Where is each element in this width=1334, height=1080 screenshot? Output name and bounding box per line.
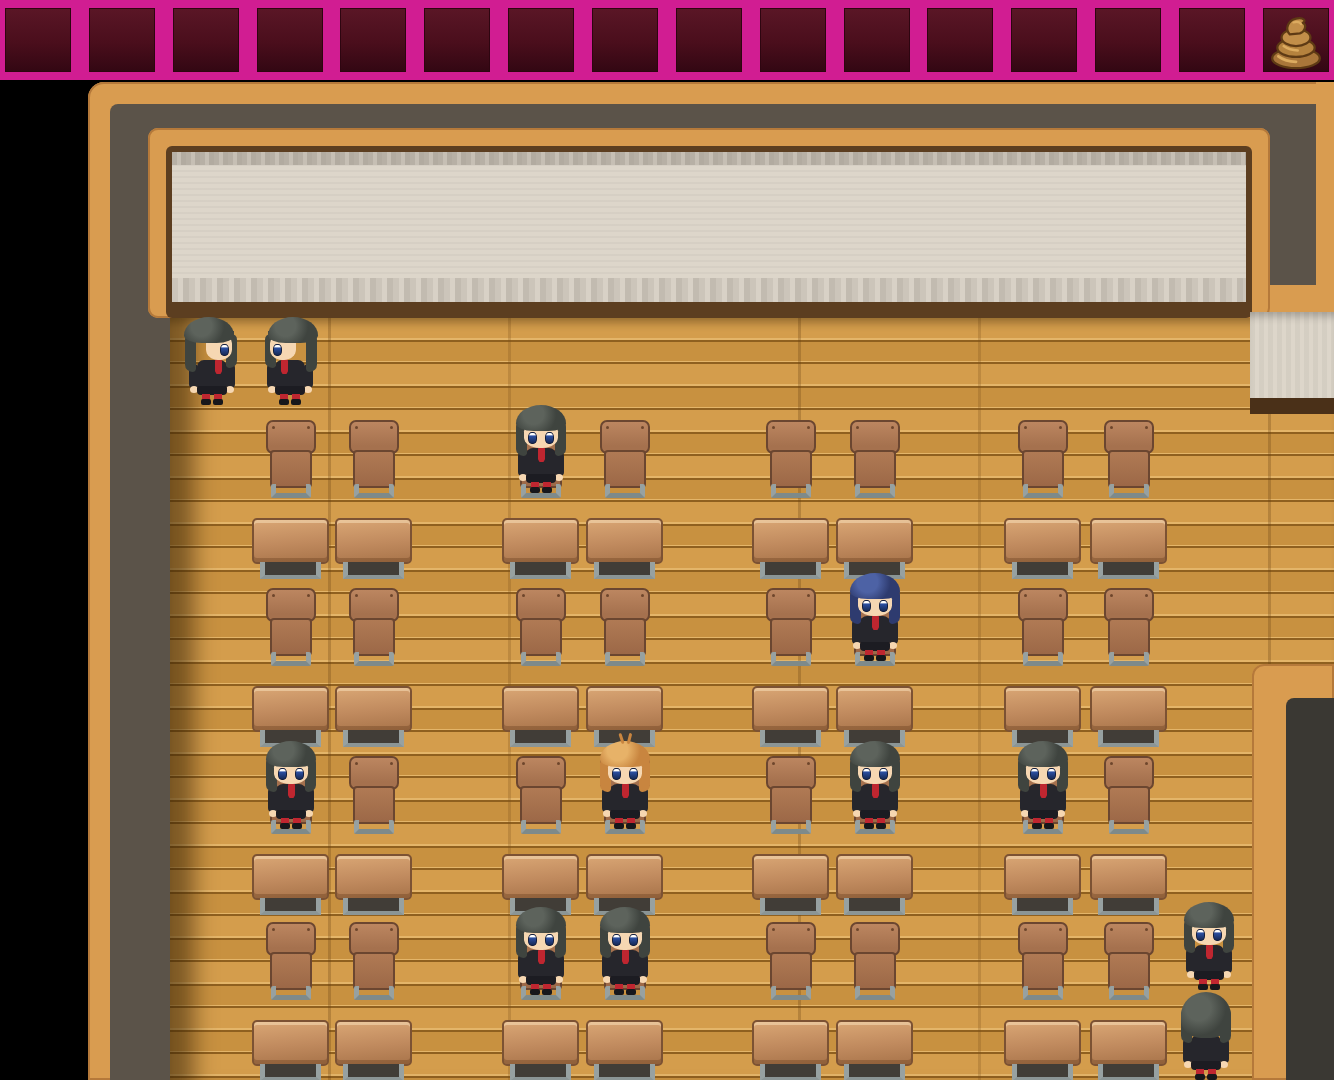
desk xyxy=(1004,854,1081,916)
student-shoe-r xyxy=(876,655,886,661)
desk xyxy=(502,686,579,748)
desk-top xyxy=(752,1020,829,1066)
desk-top xyxy=(586,1020,663,1066)
desk-top xyxy=(836,1020,913,1066)
chair xyxy=(1018,588,1068,666)
student-11[interactable] xyxy=(1183,903,1235,991)
student-shoe-r xyxy=(876,823,886,829)
student-eye-r xyxy=(629,768,638,780)
chair-backrest xyxy=(766,420,816,454)
chair-legs xyxy=(1109,484,1149,498)
item-slot[interactable] xyxy=(1011,8,1077,72)
desk-legs xyxy=(1098,562,1159,579)
desk-top xyxy=(1090,1020,1167,1066)
desk xyxy=(836,686,913,748)
desk-top xyxy=(502,1020,579,1066)
chair-seat xyxy=(520,618,562,656)
chair-backrest xyxy=(266,588,316,622)
student-tie xyxy=(1041,786,1046,798)
chair-seat xyxy=(270,450,312,488)
desk xyxy=(252,518,329,580)
chair-seat xyxy=(353,450,395,488)
student-shoe-l xyxy=(1195,1074,1205,1080)
student-eye-r xyxy=(545,934,554,946)
chair-backrest xyxy=(1104,588,1154,622)
student-1[interactable] xyxy=(186,318,238,406)
student-hair-m xyxy=(600,741,650,767)
desk xyxy=(1090,686,1167,748)
desk xyxy=(1004,1020,1081,1080)
desk xyxy=(252,1020,329,1080)
student-hair-m xyxy=(516,907,566,933)
student-shoe-l xyxy=(201,399,211,405)
chair xyxy=(516,588,566,666)
desk-top xyxy=(586,854,663,900)
student-hair-m xyxy=(1018,741,1068,767)
desk xyxy=(502,1020,579,1080)
item-bar xyxy=(0,0,1334,80)
chair xyxy=(266,588,316,666)
student-eye-l xyxy=(528,432,537,444)
chair-backrest xyxy=(1018,420,1068,454)
student-shoe-r xyxy=(1044,823,1054,829)
desk-top xyxy=(335,518,412,564)
chair-seat xyxy=(353,618,395,656)
chair-backrest xyxy=(850,420,900,454)
student-eye-r xyxy=(295,768,304,780)
student-hand-r xyxy=(1220,1061,1228,1068)
chair-seat xyxy=(270,618,312,656)
student-tie xyxy=(289,786,294,798)
chair-legs xyxy=(855,484,895,498)
student-shoe-r xyxy=(292,823,302,829)
desk xyxy=(252,686,329,748)
item-slot[interactable] xyxy=(927,8,993,72)
desk-legs xyxy=(760,562,821,579)
desk-top xyxy=(1004,1020,1081,1066)
student-shoe-l xyxy=(614,823,624,829)
student-eye-r xyxy=(629,934,638,946)
item-slot[interactable] xyxy=(340,8,406,72)
chair-seat xyxy=(770,450,812,488)
desk-legs xyxy=(260,898,321,915)
student-10[interactable] xyxy=(599,908,651,996)
student-eye-l xyxy=(612,768,621,780)
chair-seat xyxy=(1108,450,1150,488)
desk xyxy=(752,686,829,748)
chair-backrest xyxy=(266,922,316,956)
desk xyxy=(1004,686,1081,748)
chair-seat xyxy=(770,786,812,824)
desk-top xyxy=(586,686,663,732)
student-eye-r xyxy=(879,600,888,612)
student-hair-m xyxy=(1181,992,1231,1038)
student-hand-r xyxy=(305,810,313,817)
student-shoe-l xyxy=(280,823,290,829)
item-slot[interactable] xyxy=(760,8,826,72)
student-eye-r xyxy=(1213,929,1222,941)
desk-top xyxy=(1090,854,1167,900)
student-hair-m xyxy=(268,317,318,343)
student-5[interactable] xyxy=(265,742,317,830)
desk-legs xyxy=(1098,898,1159,915)
desk-top xyxy=(252,518,329,564)
chair xyxy=(349,588,399,666)
chair-backrest xyxy=(349,420,399,454)
chair-backrest xyxy=(1104,756,1154,790)
chair xyxy=(349,756,399,834)
desk-top xyxy=(502,686,579,732)
student-torso xyxy=(197,360,227,388)
student-eye-r xyxy=(1047,768,1056,780)
chair-seat xyxy=(520,786,562,824)
chair xyxy=(266,922,316,1000)
desk-top xyxy=(335,686,412,732)
desk-legs xyxy=(594,562,655,579)
chair-legs xyxy=(354,986,394,1000)
student-eye-l xyxy=(273,344,282,356)
student-tie xyxy=(873,786,878,798)
desk-top xyxy=(1004,518,1081,564)
student-shoe-l xyxy=(530,487,540,493)
chair-backrest xyxy=(349,756,399,790)
desk xyxy=(1004,518,1081,580)
chair xyxy=(600,420,650,498)
chair-seat xyxy=(1022,952,1064,990)
chair-backrest xyxy=(516,756,566,790)
student-shoe-r xyxy=(626,823,636,829)
chair-legs xyxy=(855,986,895,1000)
student-eye-r xyxy=(220,344,229,356)
chair-legs xyxy=(1023,652,1063,666)
item-slot[interactable] xyxy=(89,8,155,72)
student-tie xyxy=(623,786,628,798)
chair-seat xyxy=(1108,952,1150,990)
student-eye-l xyxy=(862,600,871,612)
chair xyxy=(850,420,900,498)
chair-legs xyxy=(354,484,394,498)
chair-backrest xyxy=(1018,588,1068,622)
desk-top xyxy=(752,686,829,732)
student-hand-r xyxy=(304,386,312,393)
student-tie xyxy=(873,618,878,630)
student-shoe-l xyxy=(614,989,624,995)
item-slot[interactable] xyxy=(592,8,658,72)
student-shoe-r xyxy=(542,989,552,995)
student-hand-r xyxy=(1057,810,1065,817)
desk-legs xyxy=(760,730,821,747)
chair-legs xyxy=(1109,652,1149,666)
desk xyxy=(335,1020,412,1080)
chair-legs xyxy=(271,652,311,666)
student-hair-m xyxy=(184,317,234,343)
chair xyxy=(1104,420,1154,498)
desk-top xyxy=(752,518,829,564)
item-slot[interactable] xyxy=(257,8,323,72)
student-hand-r xyxy=(1223,971,1231,978)
student-hand-r xyxy=(226,386,234,393)
student-tie xyxy=(216,362,221,374)
item-slot[interactable] xyxy=(1095,8,1161,72)
desk xyxy=(335,518,412,580)
student-tie xyxy=(539,952,544,964)
chair-backrest xyxy=(850,922,900,956)
desk-legs xyxy=(844,898,905,915)
chair xyxy=(766,420,816,498)
desk-legs xyxy=(1012,898,1073,915)
desk-legs xyxy=(343,898,404,915)
desk xyxy=(1090,1020,1167,1080)
sprite-layer xyxy=(0,0,1334,1080)
student-shoe-r xyxy=(1210,984,1220,990)
student-hand-r xyxy=(639,976,647,983)
student-shoe-r xyxy=(1207,1074,1217,1080)
chair-seat xyxy=(353,952,395,990)
desk-legs xyxy=(760,898,821,915)
desk-top xyxy=(502,854,579,900)
desk-legs xyxy=(510,1064,571,1080)
chair-backrest xyxy=(1104,922,1154,956)
chair-legs xyxy=(354,820,394,834)
student-shoe-l xyxy=(1032,823,1042,829)
student-tie xyxy=(623,952,628,964)
student-shoe-l xyxy=(864,655,874,661)
chair-backrest xyxy=(1104,420,1154,454)
desk-legs xyxy=(260,562,321,579)
student-eye-r xyxy=(879,768,888,780)
item-slot[interactable] xyxy=(1179,8,1245,72)
student-2[interactable] xyxy=(264,318,316,406)
chair-backrest xyxy=(600,420,650,454)
student-9[interactable] xyxy=(515,908,567,996)
desk xyxy=(752,1020,829,1080)
desk-legs xyxy=(343,730,404,747)
chair-legs xyxy=(771,652,811,666)
desk-legs xyxy=(510,730,571,747)
desk-top xyxy=(335,854,412,900)
desk-top xyxy=(1090,686,1167,732)
desk-legs xyxy=(260,1064,321,1080)
chair-legs xyxy=(1023,986,1063,1000)
chair-legs xyxy=(771,484,811,498)
student-hair-m xyxy=(600,907,650,933)
chair xyxy=(600,588,650,666)
desk-top xyxy=(502,518,579,564)
chair-seat xyxy=(353,786,395,824)
student-tie xyxy=(282,362,287,374)
desk xyxy=(752,518,829,580)
desk xyxy=(836,1020,913,1080)
student-torso xyxy=(1191,1035,1221,1063)
desk-legs xyxy=(760,1064,821,1080)
student-eye-l xyxy=(1196,929,1205,941)
chair-backrest xyxy=(766,756,816,790)
student-eye-l xyxy=(612,934,621,946)
chair-seat xyxy=(770,618,812,656)
poop-icon[interactable] xyxy=(1266,13,1326,70)
student-shoe-l xyxy=(530,989,540,995)
desk xyxy=(752,854,829,916)
desk-top xyxy=(586,518,663,564)
chair xyxy=(349,922,399,1000)
chair-legs xyxy=(771,986,811,1000)
chair-seat xyxy=(1108,786,1150,824)
desk-top xyxy=(1004,854,1081,900)
student-hand-r xyxy=(639,810,647,817)
desk-legs xyxy=(1098,730,1159,747)
item-slot[interactable] xyxy=(424,8,490,72)
chair-backrest xyxy=(766,588,816,622)
desk xyxy=(335,686,412,748)
student-hand-r xyxy=(889,642,897,649)
chair xyxy=(266,420,316,498)
desk-legs xyxy=(594,1064,655,1080)
desk-legs xyxy=(1012,1064,1073,1080)
chair xyxy=(766,756,816,834)
item-slot[interactable] xyxy=(508,8,574,72)
chair-backrest xyxy=(766,922,816,956)
student-shoe-l xyxy=(279,399,289,405)
desk-legs xyxy=(1098,1064,1159,1080)
desk xyxy=(836,854,913,916)
chair-legs xyxy=(605,484,645,498)
student-tie xyxy=(1207,947,1212,959)
item-slot[interactable] xyxy=(1263,8,1329,72)
desk-top xyxy=(1090,518,1167,564)
student-8[interactable] xyxy=(1017,742,1069,830)
desk-top xyxy=(836,686,913,732)
student-eye-l xyxy=(1030,768,1039,780)
item-slot[interactable] xyxy=(5,8,71,72)
student-shoe-r xyxy=(291,399,301,405)
chair xyxy=(850,922,900,1000)
chair xyxy=(766,588,816,666)
chair xyxy=(516,756,566,834)
desk-top xyxy=(1004,686,1081,732)
student-6[interactable] xyxy=(599,742,651,830)
student-tie xyxy=(539,450,544,462)
chair-backrest xyxy=(1018,922,1068,956)
chair-seat xyxy=(1108,618,1150,656)
item-slot[interactable] xyxy=(676,8,742,72)
desk-top xyxy=(836,518,913,564)
student-eye-l xyxy=(528,934,537,946)
student-shoe-l xyxy=(864,823,874,829)
chair-seat xyxy=(1022,450,1064,488)
game-screen[interactable] xyxy=(0,0,1334,1080)
student-shoe-r xyxy=(542,487,552,493)
chair-legs xyxy=(271,986,311,1000)
desk-top xyxy=(252,854,329,900)
chair-legs xyxy=(271,484,311,498)
chair-legs xyxy=(771,820,811,834)
student-hair-m xyxy=(850,741,900,767)
student-hand-r xyxy=(555,474,563,481)
chair-legs xyxy=(605,652,645,666)
chair-seat xyxy=(604,618,646,656)
chair xyxy=(766,922,816,1000)
desk-legs xyxy=(510,562,571,579)
desk xyxy=(1090,518,1167,580)
chair xyxy=(1104,922,1154,1000)
student-hair-m xyxy=(850,573,900,599)
chair-seat xyxy=(770,952,812,990)
student-4[interactable] xyxy=(849,574,901,662)
desk xyxy=(252,854,329,916)
item-slot[interactable] xyxy=(844,8,910,72)
chair-seat xyxy=(270,952,312,990)
chair xyxy=(1104,588,1154,666)
desk-top xyxy=(752,854,829,900)
chair-backrest xyxy=(349,588,399,622)
student-hair-m xyxy=(1184,902,1234,928)
student-hair-m xyxy=(516,405,566,431)
chair-legs xyxy=(521,820,561,834)
chair-seat xyxy=(604,450,646,488)
desk-legs xyxy=(343,1064,404,1080)
student-shoe-r xyxy=(626,989,636,995)
chair-backrest xyxy=(600,588,650,622)
desk-top xyxy=(252,686,329,732)
chair-seat xyxy=(1022,618,1064,656)
chair-legs xyxy=(354,652,394,666)
chair xyxy=(1018,922,1068,1000)
chair-legs xyxy=(1109,820,1149,834)
desk xyxy=(586,518,663,580)
chair-backrest xyxy=(349,922,399,956)
desk-top xyxy=(335,1020,412,1066)
chair-legs xyxy=(1023,484,1063,498)
desk xyxy=(586,1020,663,1080)
desk xyxy=(836,518,913,580)
student-hand-r xyxy=(889,810,897,817)
chair xyxy=(349,420,399,498)
chair-legs xyxy=(521,652,561,666)
chair xyxy=(1104,756,1154,834)
desk xyxy=(502,518,579,580)
student-7[interactable] xyxy=(849,742,901,830)
desk xyxy=(335,854,412,916)
student-hair-m xyxy=(266,741,316,767)
chair-seat xyxy=(854,450,896,488)
item-slot[interactable] xyxy=(173,8,239,72)
chair-backrest xyxy=(516,588,566,622)
student-shoe-r xyxy=(213,399,223,405)
desk-top xyxy=(836,854,913,900)
desk-legs xyxy=(1012,562,1073,579)
chair-backrest xyxy=(266,420,316,454)
student-torso xyxy=(275,360,305,388)
desk xyxy=(586,686,663,748)
student-3[interactable] xyxy=(515,406,567,494)
desk-legs xyxy=(343,562,404,579)
student-eye-l xyxy=(862,768,871,780)
desk xyxy=(1090,854,1167,916)
chair-seat xyxy=(854,952,896,990)
student-shoe-l xyxy=(1198,984,1208,990)
chair-legs xyxy=(1109,986,1149,1000)
student-12[interactable] xyxy=(1180,993,1232,1080)
chair xyxy=(1018,420,1068,498)
desk-top xyxy=(252,1020,329,1066)
student-eye-l xyxy=(278,768,287,780)
student-hand-r xyxy=(555,976,563,983)
student-eye-r xyxy=(545,432,554,444)
desk-legs xyxy=(844,1064,905,1080)
